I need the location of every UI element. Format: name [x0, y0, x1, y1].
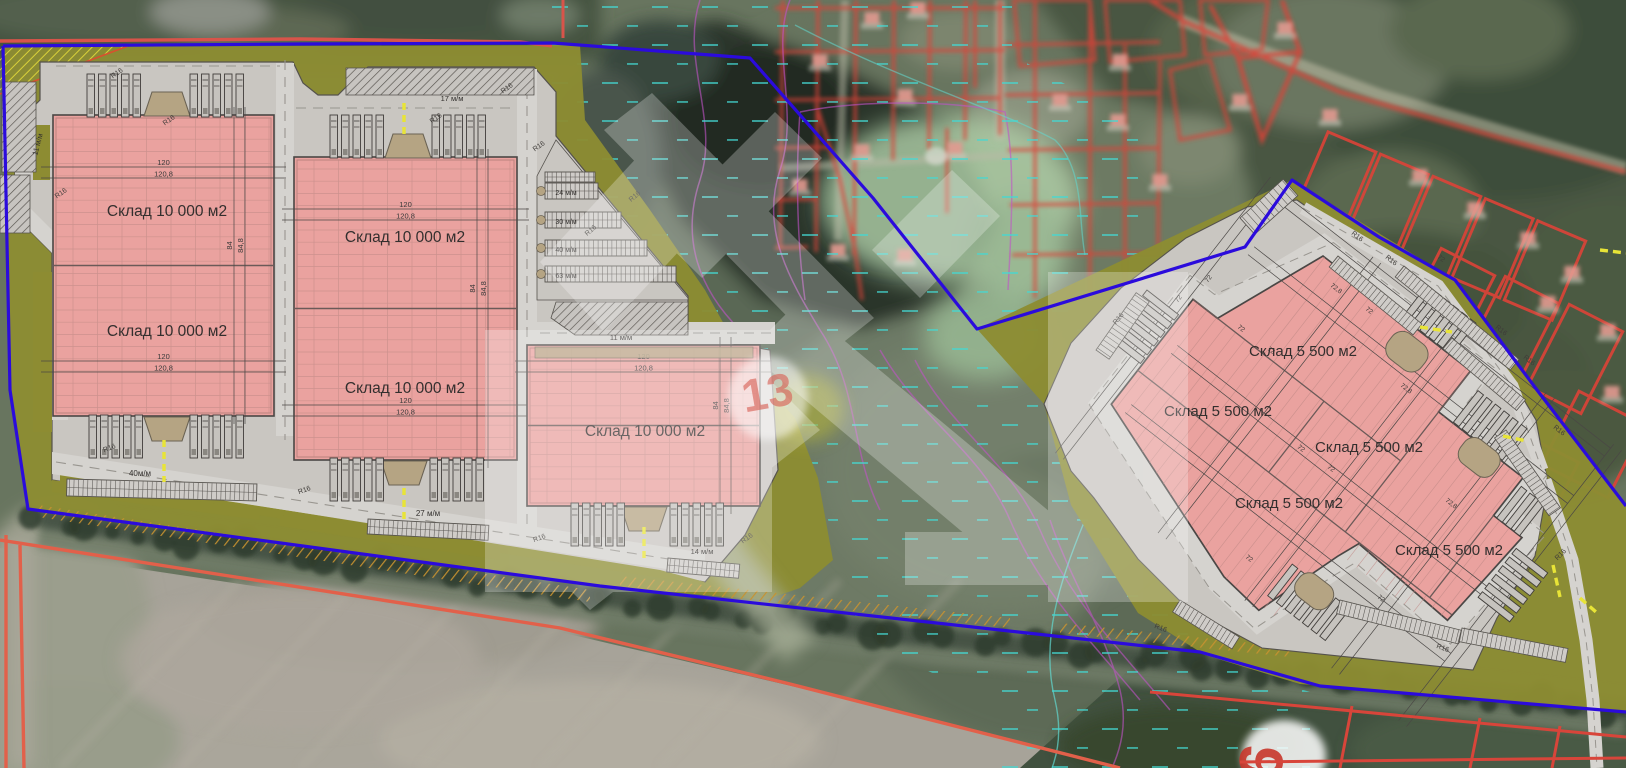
svg-text:84: 84 [468, 284, 477, 292]
svg-text:13: 13 [738, 362, 797, 422]
svg-text:120: 120 [157, 158, 170, 167]
svg-text:120,8: 120,8 [154, 170, 173, 179]
svg-text:Склад 10 000 м2: Склад 10 000 м2 [345, 229, 465, 246]
svg-text:120,8: 120,8 [154, 364, 173, 373]
svg-text:Склад 10 000 м2: Склад 10 000 м2 [107, 323, 227, 340]
svg-text:Склад 5 500 м2: Склад 5 500 м2 [1315, 439, 1423, 456]
svg-text:120,8: 120,8 [396, 408, 415, 417]
svg-text:120: 120 [399, 200, 412, 209]
svg-text:40м/м: 40м/м [129, 469, 151, 478]
svg-text:Склад 10 000 м2: Склад 10 000 м2 [345, 380, 465, 397]
svg-text:120: 120 [157, 352, 170, 361]
svg-text:Склад 5 500 м2: Склад 5 500 м2 [1235, 495, 1343, 512]
svg-text:84,8: 84,8 [479, 281, 488, 296]
svg-text:Склад 10 000 м2: Склад 10 000 м2 [107, 203, 227, 220]
svg-text:27 м/м: 27 м/м [416, 509, 440, 518]
svg-text:Склад 5 500 м2: Склад 5 500 м2 [1249, 343, 1357, 360]
svg-text:120: 120 [399, 396, 412, 405]
svg-text:24 м/м: 24 м/м [555, 190, 576, 197]
svg-text:Склад 5 500 м2: Склад 5 500 м2 [1395, 542, 1503, 559]
svg-text:30 м/м: 30 м/м [555, 219, 576, 226]
svg-text:84: 84 [225, 241, 234, 249]
svg-text:84,8: 84,8 [236, 238, 245, 253]
svg-text:120,8: 120,8 [396, 212, 415, 221]
svg-text:17 м/м: 17 м/м [441, 94, 464, 103]
